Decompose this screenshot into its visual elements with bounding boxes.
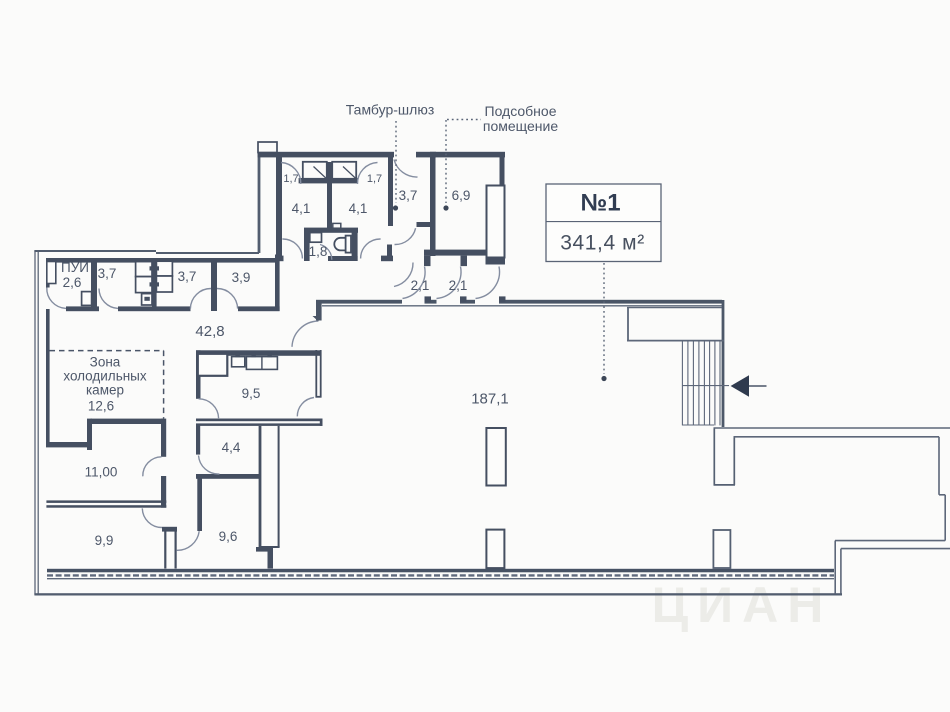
svg-text:3,7: 3,7 (178, 269, 197, 284)
svg-text:камер: камер (86, 383, 124, 398)
svg-text:1,7: 1,7 (367, 173, 382, 185)
svg-text:11,00: 11,00 (85, 465, 118, 480)
svg-text:Тамбур-шлюз: Тамбур-шлюз (346, 102, 435, 118)
svg-text:Зона: Зона (90, 355, 121, 370)
svg-text:4,4: 4,4 (222, 440, 241, 455)
svg-text:Подсобное: Подсобное (485, 103, 557, 119)
svg-text:187,1: 187,1 (471, 391, 509, 408)
svg-text:ЦИАН: ЦИАН (652, 577, 833, 633)
svg-text:2,1: 2,1 (411, 278, 430, 293)
svg-text:2,6: 2,6 (63, 275, 82, 290)
svg-text:3,7: 3,7 (399, 188, 418, 203)
svg-text:4,1: 4,1 (349, 201, 368, 216)
svg-text:№1: №1 (580, 190, 620, 217)
svg-text:ПУИ: ПУИ (61, 260, 89, 275)
svg-text:3,9: 3,9 (232, 270, 251, 285)
svg-text:42,8: 42,8 (195, 323, 224, 340)
svg-text:12,6: 12,6 (88, 399, 114, 414)
svg-text:1,8: 1,8 (309, 244, 328, 259)
svg-text:1,7: 1,7 (283, 173, 298, 185)
svg-text:2,1: 2,1 (449, 278, 468, 293)
svg-text:341,4 м²: 341,4 м² (560, 232, 645, 255)
svg-text:9,9: 9,9 (95, 533, 114, 548)
svg-text:9,6: 9,6 (219, 529, 238, 544)
svg-text:холодильных: холодильных (63, 369, 147, 384)
svg-text:6,9: 6,9 (452, 188, 471, 203)
svg-text:9,5: 9,5 (242, 386, 261, 401)
svg-text:4,1: 4,1 (292, 201, 311, 216)
svg-text:помещение: помещение (483, 118, 558, 134)
svg-text:3,7: 3,7 (98, 266, 117, 281)
